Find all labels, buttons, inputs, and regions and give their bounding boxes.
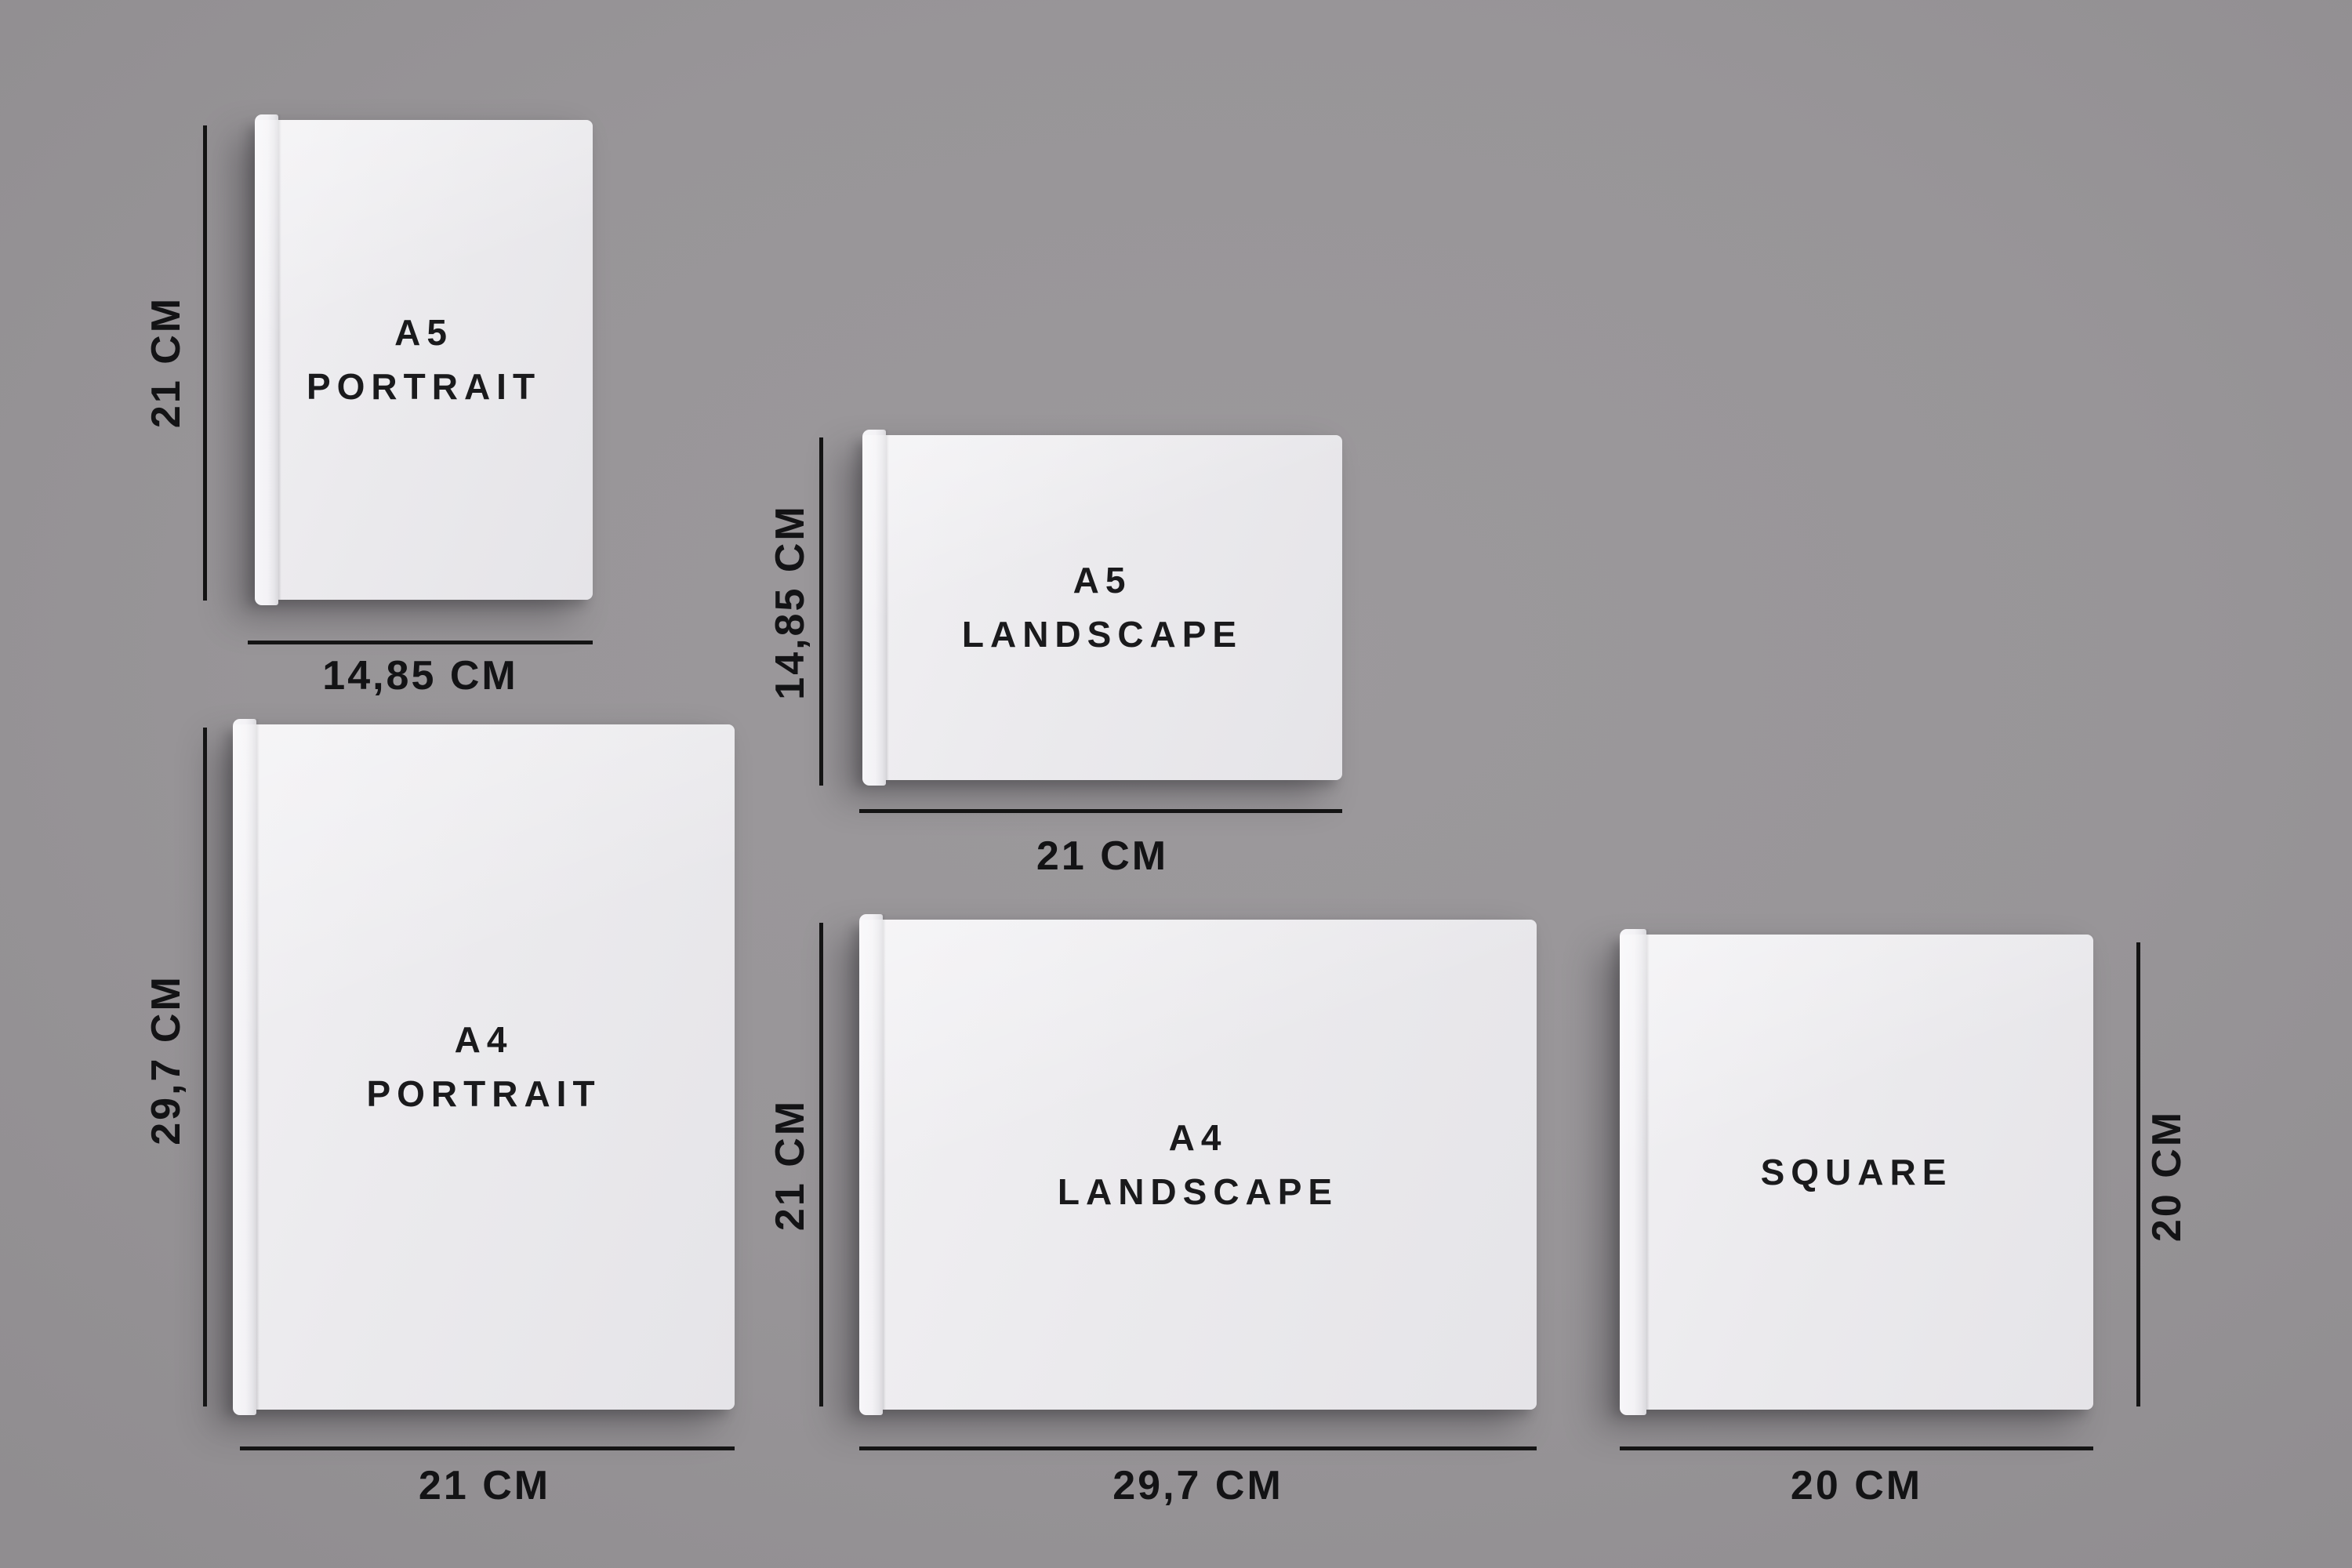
book-title: A5 PORTRAIT <box>255 120 593 600</box>
book-title-line: A5 <box>394 313 453 353</box>
book-square: SQUARE <box>1620 935 2093 1410</box>
width-dimension-line <box>859 1446 1537 1450</box>
height-dimension-label: 21 CM <box>143 296 190 428</box>
height-dimension-line <box>819 437 823 786</box>
width-dimension-label: 21 CM <box>1036 833 1168 880</box>
width-dimension-label: 14,85 CM <box>322 652 517 699</box>
book-title: SQUARE <box>1620 935 2093 1410</box>
book-a4-portrait: A4 PORTRAIT <box>233 724 735 1410</box>
book-title-line: LANDSCAPE <box>1058 1172 1338 1212</box>
height-dimension-label: 29,7 CM <box>143 975 190 1145</box>
book-title-line: LANDSCAPE <box>962 615 1243 655</box>
width-dimension-label: 29,7 CM <box>1112 1462 1283 1509</box>
height-dimension-line <box>203 728 207 1406</box>
book-title-line: A5 <box>1073 561 1132 601</box>
width-dimension-line <box>240 1446 735 1450</box>
book-a5-landscape: A5 LANDSCAPE <box>862 435 1342 780</box>
width-dimension-label: 20 CM <box>1791 1462 1922 1509</box>
book-a5-portrait: A5 PORTRAIT <box>255 120 593 600</box>
book-title: A4 LANDSCAPE <box>859 920 1537 1410</box>
book-title: A4 PORTRAIT <box>233 724 735 1410</box>
book-a4-landscape: A4 LANDSCAPE <box>859 920 1537 1410</box>
book-title: A5 LANDSCAPE <box>862 435 1342 780</box>
book-title-line: A4 <box>1169 1118 1228 1158</box>
width-dimension-line <box>859 809 1342 813</box>
width-dimension-line <box>248 641 593 644</box>
height-dimension-line <box>203 125 207 601</box>
height-dimension-line <box>2136 942 2140 1406</box>
book-title-line: PORTRAIT <box>366 1074 601 1114</box>
height-dimension-label: 21 CM <box>767 1099 814 1231</box>
book-title-line: A4 <box>455 1020 514 1060</box>
width-dimension-line <box>1620 1446 2093 1450</box>
book-title-line: SQUARE <box>1761 1152 1953 1192</box>
height-dimension-label: 14,85 CM <box>767 504 814 699</box>
height-dimension-line <box>819 923 823 1406</box>
book-title-line: PORTRAIT <box>307 367 541 407</box>
height-dimension-label: 20 CM <box>2143 1110 2190 1242</box>
width-dimension-label: 21 CM <box>419 1462 550 1509</box>
book-size-comparison: 21 CM A5 PORTRAIT 14,85 CM 14,85 CM A5 L… <box>0 0 2352 1568</box>
